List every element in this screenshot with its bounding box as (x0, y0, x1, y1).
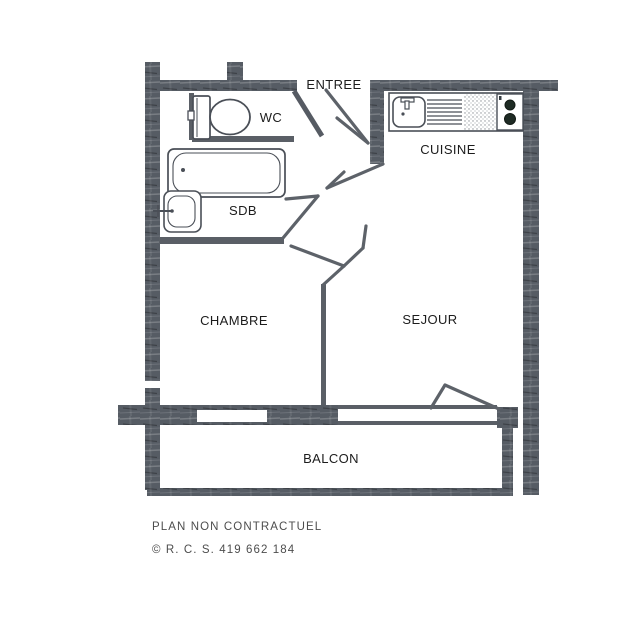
cooktop-icon (497, 94, 523, 130)
entree-door-leaf (326, 90, 368, 143)
outer-wall-left-upper (145, 62, 160, 381)
room-label-cuisine: CUISINE (420, 142, 476, 157)
chambre-window-opening (197, 410, 267, 422)
plan-registration-text: © R. C. S. 419 662 184 (152, 544, 295, 556)
room-label-entree: ENTREE (306, 77, 361, 92)
chambre-door-leaf (291, 246, 344, 266)
bathtub-icon (168, 149, 285, 197)
toilet-icon (188, 96, 250, 139)
room-label-sejour: SEJOUR (402, 312, 457, 327)
balcony-door-jamb-block (497, 407, 518, 428)
room-label-chambre: CHAMBRE (200, 313, 268, 328)
entrance-hall-diagonal-wall (294, 91, 322, 136)
floor-plan-page: ENTREE WC CUISINE SDB CHAMBRE SEJOUR BAL… (0, 0, 640, 640)
hall-wall-diagonal (344, 248, 363, 266)
sdb-bottom-wall (159, 237, 284, 244)
chambre-wall-diagonal (323, 266, 344, 285)
wall-stub-top (227, 62, 243, 81)
washbasin-icon (153, 191, 201, 232)
plan-disclaimer-text: PLAN NON CONTRACTUEL (152, 521, 322, 533)
doors (283, 90, 499, 409)
balcony-door-chord (431, 385, 445, 408)
kitchen-sink-icon (393, 97, 425, 127)
sdb-door-chord (286, 196, 318, 199)
sdb-door-leaf (283, 196, 318, 238)
chambre-sejour-wall (321, 284, 326, 405)
room-label-balcon: BALCON (303, 451, 359, 466)
outer-wall-left-lower (145, 388, 160, 490)
sejour-door-leaf (327, 164, 383, 188)
sejour-door-jamb (363, 226, 366, 248)
sejour-window-top-line (338, 405, 497, 409)
footer-notes: PLAN NON CONTRACTUEL © R. C. S. 419 662 … (152, 521, 322, 556)
outer-wall-right (523, 91, 539, 495)
room-label-wc: WC (260, 110, 282, 125)
worktop-stipple-area (464, 94, 497, 130)
balcony-front-wall (147, 488, 513, 496)
kitchen-partition-wall (370, 91, 384, 164)
room-label-sdb: SDB (229, 203, 257, 218)
floor-plan-drawing: ENTREE WC CUISINE SDB CHAMBRE SEJOUR BAL… (0, 0, 640, 640)
outer-wall-top-right (370, 80, 558, 91)
drainer-lines (427, 100, 462, 124)
outer-wall-top-left (159, 80, 297, 91)
kitchen-counter (389, 93, 523, 131)
sejour-window-bottom-line (338, 421, 497, 425)
balcony-side-wall-right (502, 428, 513, 488)
